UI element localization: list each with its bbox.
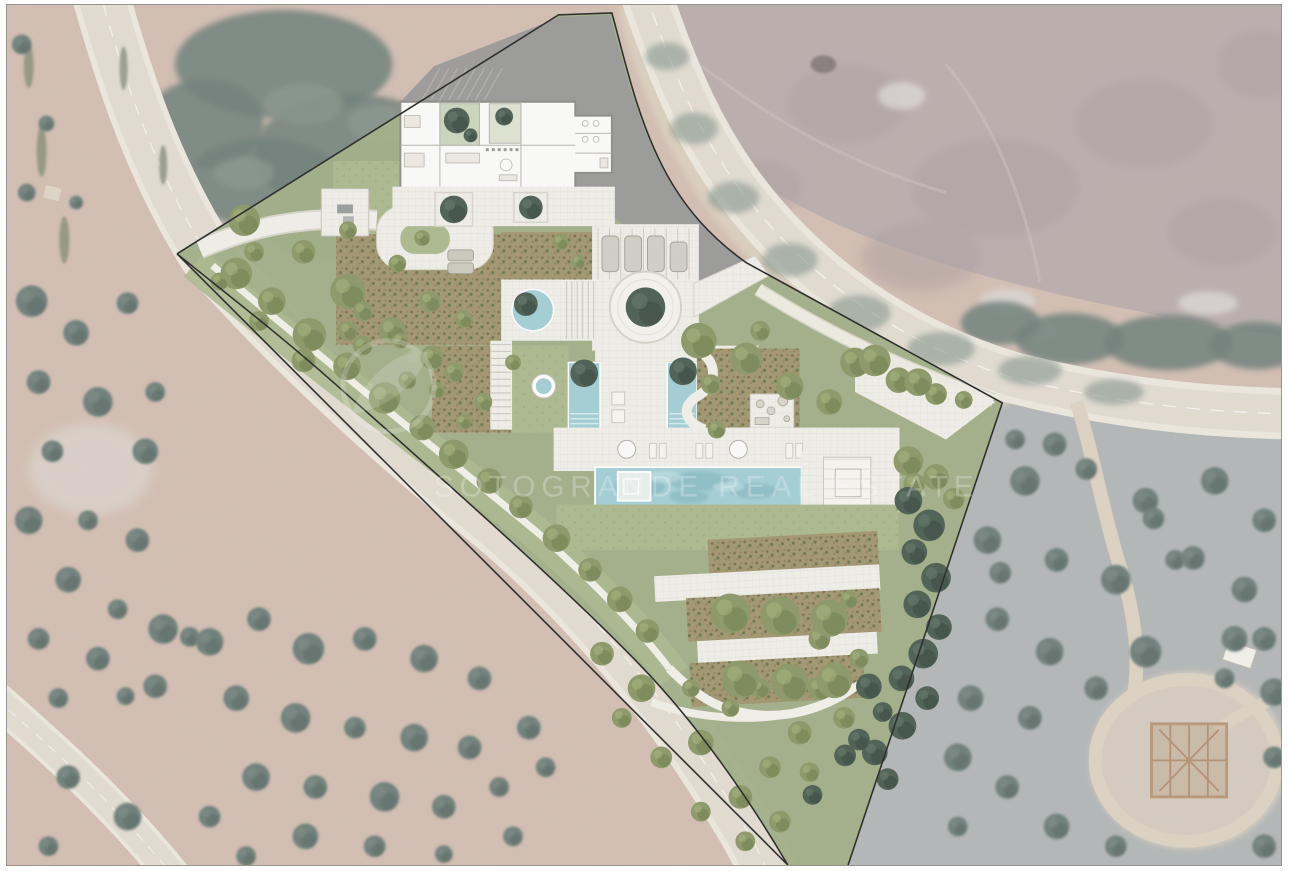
site-plan-canvas: SOTOGRANDE REAL ESTATE <box>7 5 1281 865</box>
photo-grain <box>7 5 1281 865</box>
aerial-photo-frame: SOTOGRANDE REAL ESTATE <box>6 4 1282 866</box>
aerial-site-plan-figure: SOTOGRANDE REAL ESTATE <box>0 0 1289 871</box>
